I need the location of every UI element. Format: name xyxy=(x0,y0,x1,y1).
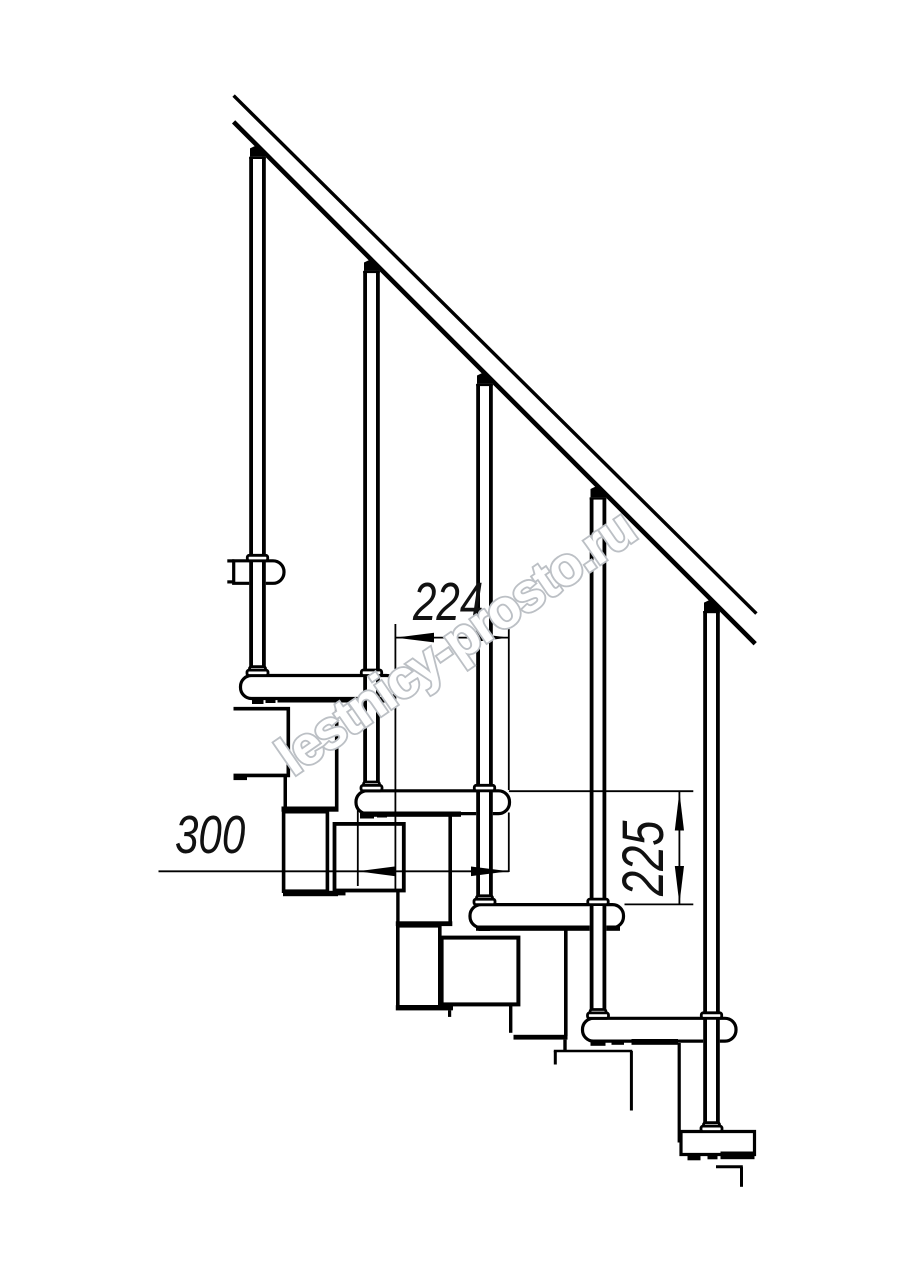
svg-text:300: 300 xyxy=(175,805,245,865)
svg-text:225: 225 xyxy=(612,820,677,897)
